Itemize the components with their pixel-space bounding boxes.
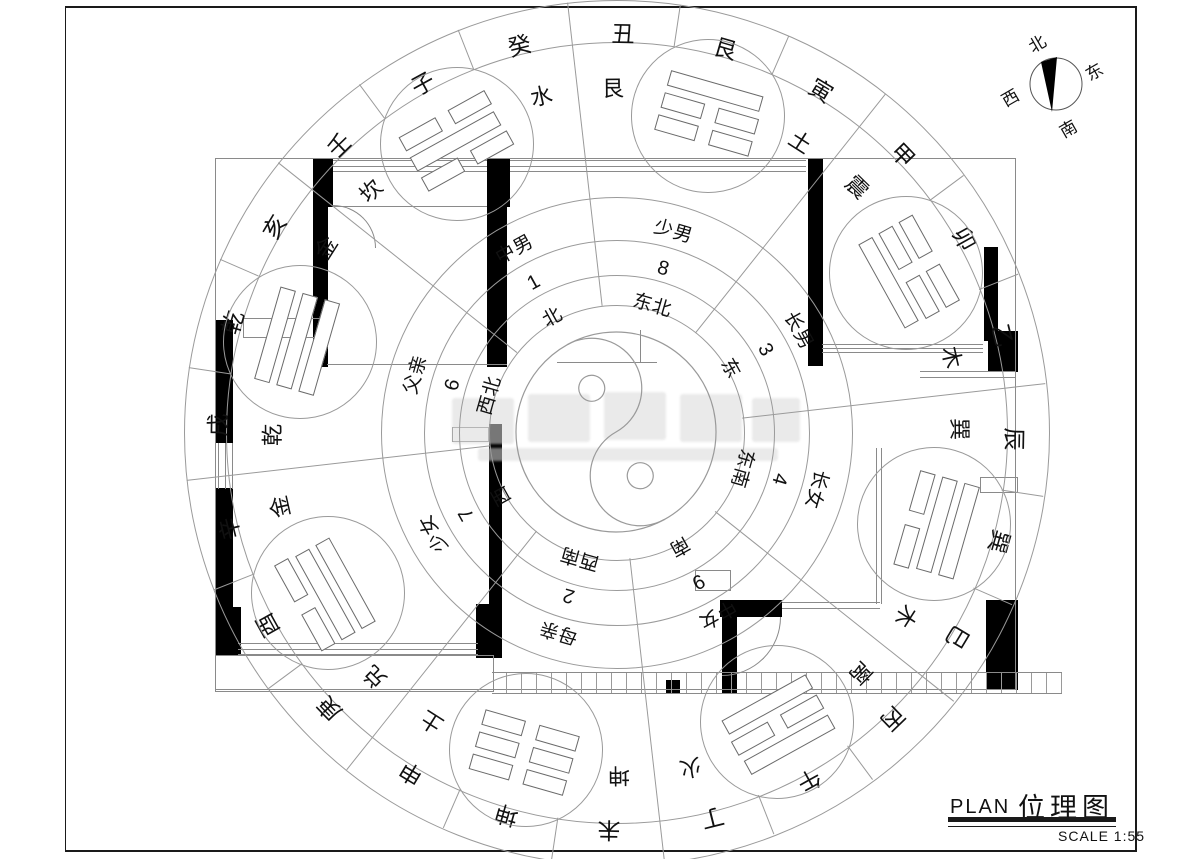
ring24-character: 丑 [611, 15, 635, 49]
ring-trigram-name-character: 坤 [608, 761, 630, 793]
ring-trigram-name-character: 艮 [602, 71, 624, 103]
trigram-line-broken [481, 710, 526, 737]
title-underline-thin [948, 826, 1116, 827]
trigram-line-broken [708, 130, 753, 157]
ring24-character: 未 [597, 815, 621, 849]
trigram-line-broken [909, 470, 936, 515]
plan-label: PLAN [950, 796, 1010, 819]
trigram-line-broken [660, 92, 705, 119]
trigram-line-broken [522, 769, 567, 796]
compass-needle-icon [1041, 57, 1057, 112]
ring24-character: 辰 [999, 427, 1033, 451]
trigram-line-broken [535, 725, 580, 752]
trigram-line-broken [475, 732, 520, 759]
drawing-sheet: 子癸丑艮寅甲卯乙辰巽巳丙午丁未坤申庚酉辛戌乾亥壬水艮土震木巽木离火坤土兑金乾金坎… [0, 0, 1200, 859]
trigram-line-broken [654, 114, 699, 141]
scale-label: SCALE 1:55 [1058, 828, 1145, 844]
ring-trigram-name-character: 乾 [255, 424, 287, 446]
ring-trigram-name-character: 巽 [945, 418, 977, 440]
trigram-line-broken [894, 524, 921, 569]
trigram-line-broken [529, 747, 574, 774]
trigram-line-broken [714, 107, 759, 134]
ring24-character: 戌 [199, 413, 233, 437]
trigram-line-broken [469, 754, 514, 781]
title-underline-thick [948, 817, 1116, 822]
